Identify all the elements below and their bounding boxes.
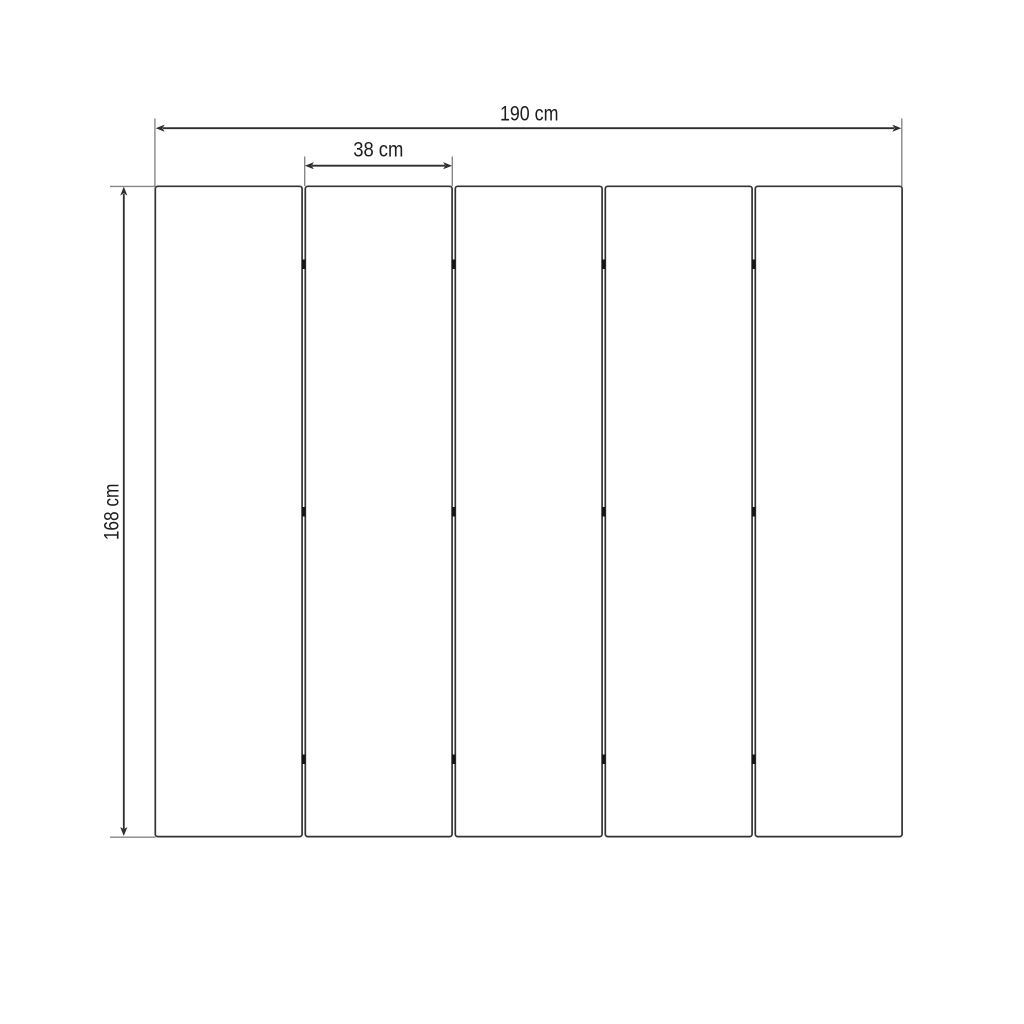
svg-text:190 cm: 190 cm	[500, 101, 559, 125]
svg-text:168 cm: 168 cm	[100, 484, 124, 541]
svg-text:38 cm: 38 cm	[353, 137, 403, 161]
